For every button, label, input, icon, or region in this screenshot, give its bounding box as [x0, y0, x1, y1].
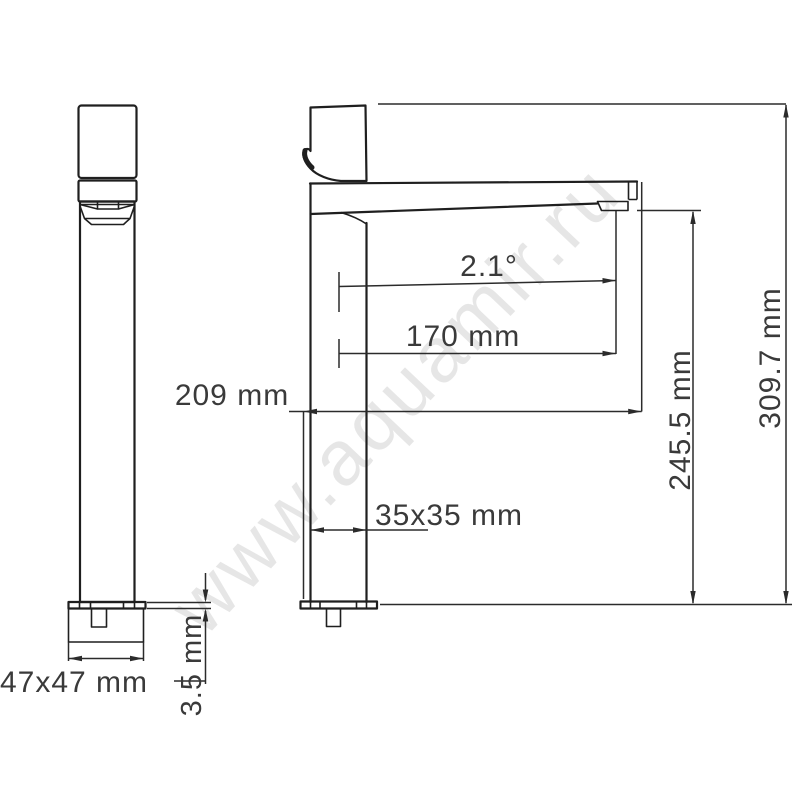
- dim-body-section: 35x35 mm: [311, 499, 524, 533]
- dim-label-flange-thickness: 3.5 mm: [176, 614, 208, 717]
- dim-base-footprint: 47x47 mm: [0, 642, 148, 699]
- technical-drawing-canvas: 47x47 mm 3.5 mm: [0, 0, 800, 800]
- side-spout-fillet: [341, 213, 367, 225]
- side-handle-knob: [305, 151, 312, 168]
- faucet-technical-drawing: www.aquamir.ru: [0, 0, 800, 800]
- dim-outlet-height: 245.5 mm: [664, 211, 697, 605]
- dim-label-outlet-height: 245.5 mm: [664, 349, 697, 490]
- front-flange: [69, 602, 146, 609]
- dim-label-body-section: 35x35 mm: [375, 499, 523, 532]
- front-spout-facets: [80, 202, 135, 225]
- side-spout-underside: [311, 204, 598, 215]
- side-view: [301, 106, 638, 627]
- front-handle: [79, 106, 137, 179]
- dim-label-overall-height: 309.7 mm: [754, 287, 787, 428]
- dim-spout-projection: 209 mm: [175, 379, 642, 414]
- front-neck: [79, 181, 137, 202]
- side-flange: [301, 602, 378, 609]
- side-spout-tip: [629, 182, 638, 200]
- dim-label-spout-projection: 209 mm: [175, 379, 289, 412]
- dim-flange-thickness: 3.5 mm: [147, 573, 211, 716]
- side-aerator: [598, 202, 629, 211]
- dim-overall-height: 309.7 mm: [754, 104, 789, 605]
- front-shank: [92, 609, 107, 628]
- front-view: [69, 106, 146, 643]
- dim-spout-angle: 2.1°: [339, 250, 616, 312]
- dim-label-base-footprint: 47x47 mm: [0, 666, 148, 699]
- dim-label-spout-angle: 2.1°: [460, 250, 518, 283]
- dim-label-spout-reach: 170 mm: [406, 320, 520, 353]
- side-shank: [327, 609, 341, 627]
- dim-spout-reach: 170 mm: [339, 320, 616, 368]
- front-body-column: [80, 202, 135, 603]
